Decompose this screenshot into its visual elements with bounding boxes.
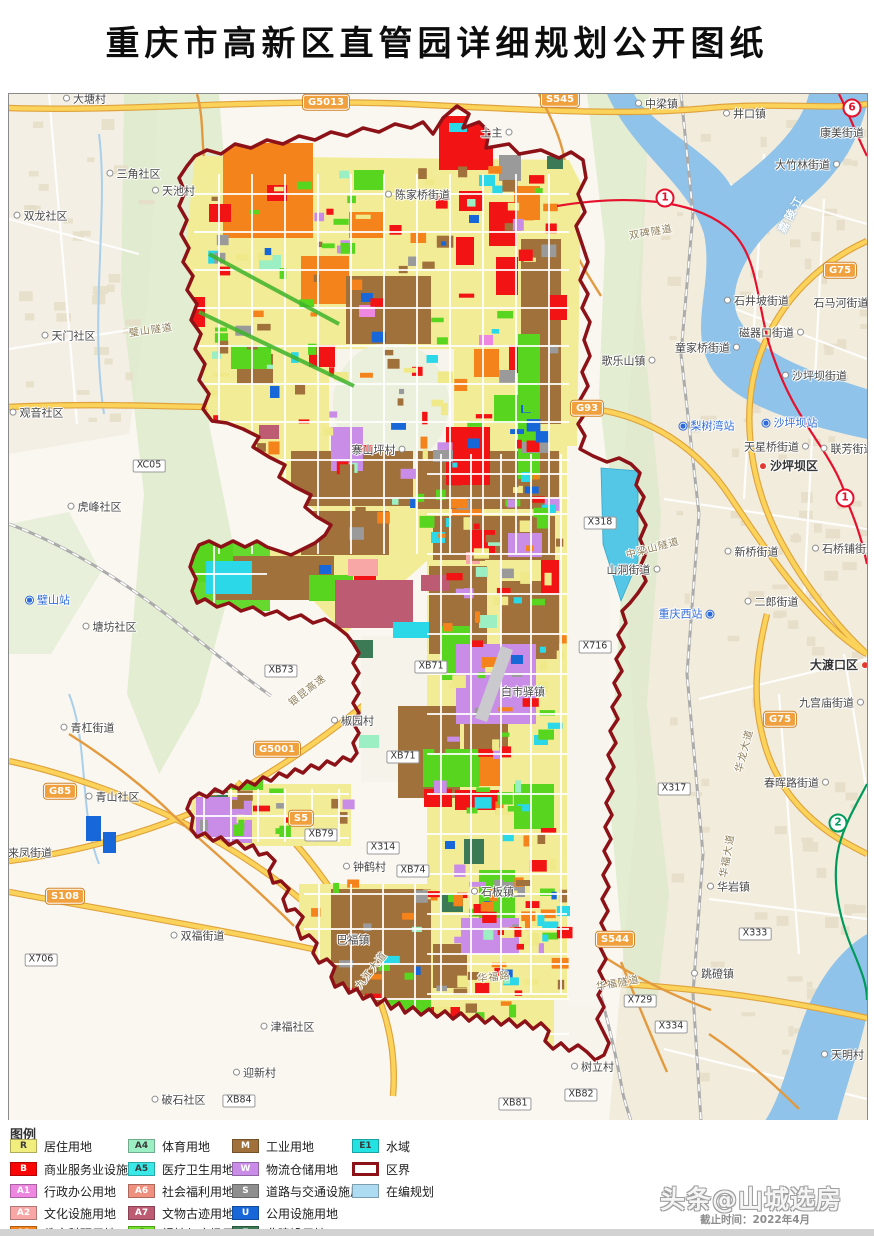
watermark-text: 头条@山城选房 [628, 1180, 874, 1216]
page-title: 重庆市高新区直管园详细规划公开图纸 [0, 16, 874, 65]
legend-label: 物流仓储用地 [266, 1161, 338, 1178]
map-graphic [9, 94, 867, 1121]
legend-label: 体育用地 [162, 1138, 210, 1155]
legend-swatch: S [232, 1184, 259, 1198]
bottom-bar [0, 1229, 874, 1236]
legend-swatch: A6 [128, 1184, 155, 1198]
legend-swatch: A1 [10, 1184, 37, 1198]
legend-label: 文物古迹用地 [162, 1205, 234, 1222]
legend-label: 居住用地 [44, 1138, 92, 1155]
watermark-date: 截止时间：2022年4月 [700, 1212, 810, 1227]
legend-item: W物流仓储用地 [232, 1161, 338, 1177]
legend-item: U公用设施用地 [232, 1205, 338, 1221]
legend-label: 行政办公用地 [44, 1183, 116, 1200]
legend-item: M工业用地 [232, 1138, 314, 1154]
legend-label: 水域 [386, 1138, 410, 1155]
legend-item: 区界 [352, 1161, 410, 1177]
legend-item: A6社会福利用地 [128, 1183, 234, 1199]
legend-label: 公用设施用地 [266, 1205, 338, 1222]
map-canvas: 大塘村中梁镇井口镇康美街道大竹林街道三角社区天池村土主双龙社区陈家桥街道石井坡街… [8, 93, 868, 1122]
legend-swatch: E1 [352, 1139, 379, 1153]
legend-swatch: U [232, 1206, 259, 1220]
legend-item: E1水域 [352, 1138, 410, 1154]
legend-label: 工业用地 [266, 1138, 314, 1155]
legend-swatch: A4 [128, 1139, 155, 1153]
legend-label: 社会福利用地 [162, 1183, 234, 1200]
legend-item: A5医疗卫生用地 [128, 1161, 234, 1177]
legend-swatch: R [10, 1139, 37, 1153]
legend-label: 文化设施用地 [44, 1205, 116, 1222]
legend-item: A1行政办公用地 [10, 1183, 116, 1199]
legend-swatch: A5 [128, 1162, 155, 1176]
legend-swatch [352, 1184, 379, 1198]
legend-item: R居住用地 [10, 1138, 92, 1154]
legend-swatch: M [232, 1139, 259, 1153]
legend-label: 在编规划 [386, 1183, 434, 1200]
legend-item: A4体育用地 [128, 1138, 210, 1154]
planning-poster: 重庆市高新区直管园详细规划公开图纸 [0, 0, 874, 1236]
legend-item: 在编规划 [352, 1183, 434, 1199]
legend-swatch [352, 1162, 379, 1176]
legend-swatch: A2 [10, 1206, 37, 1220]
legend-item: A7文物古迹用地 [128, 1205, 234, 1221]
legend-swatch: B [10, 1162, 37, 1176]
legend-label: 区界 [386, 1161, 410, 1178]
legend-swatch: W [232, 1162, 259, 1176]
legend-swatch: A7 [128, 1206, 155, 1220]
legend-label: 医疗卫生用地 [162, 1161, 234, 1178]
legend-item: A2文化设施用地 [10, 1205, 116, 1221]
